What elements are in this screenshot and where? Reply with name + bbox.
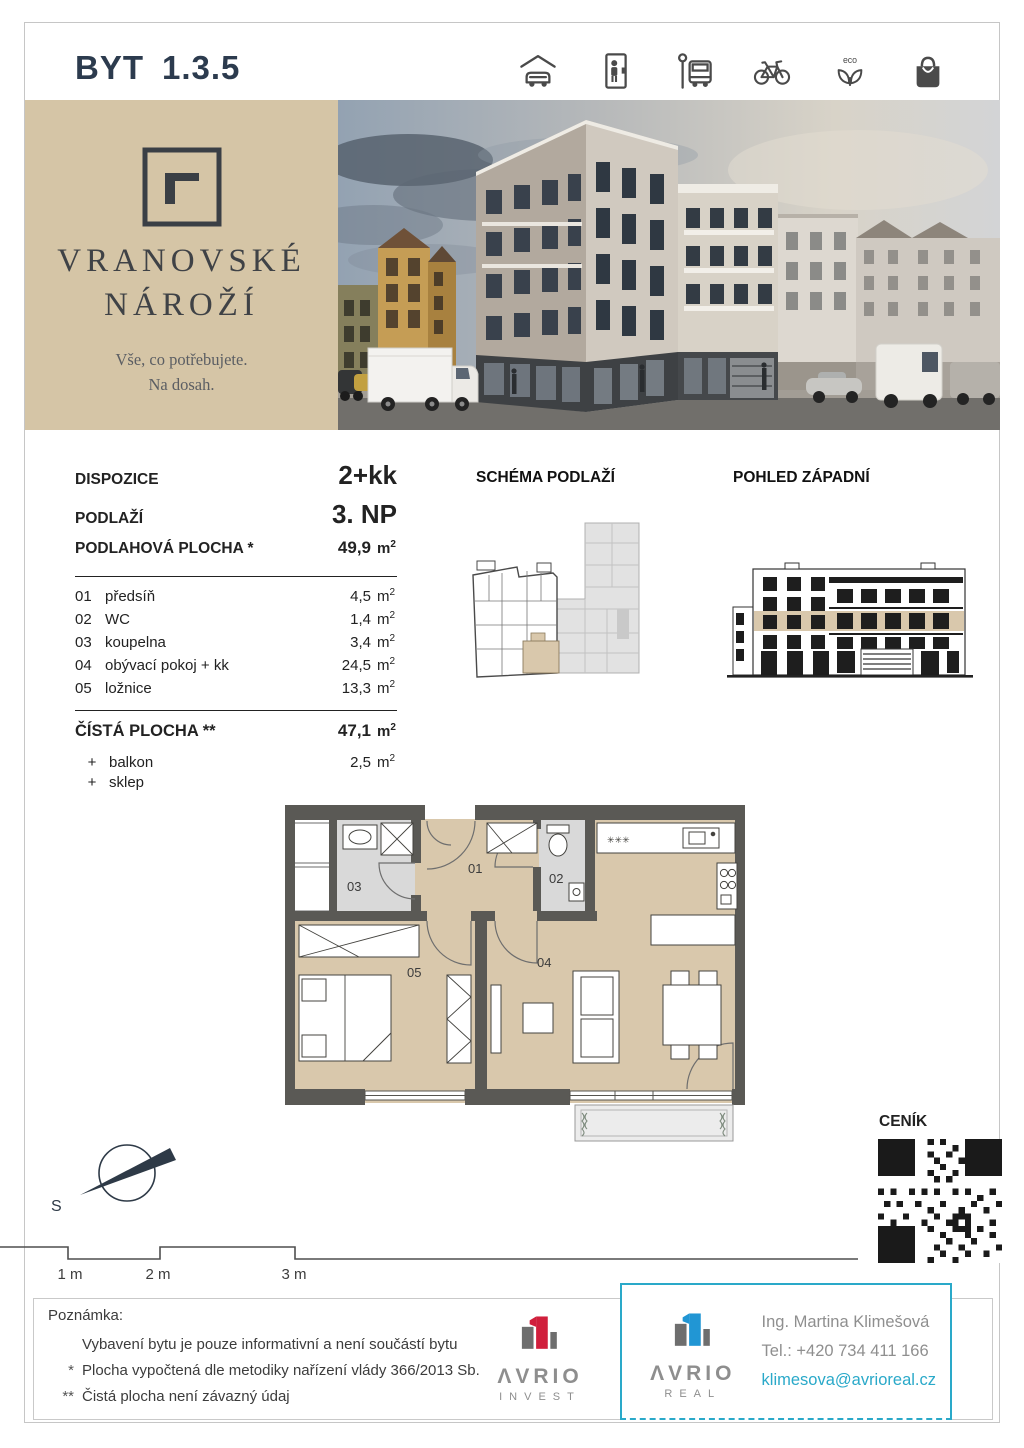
scale-label-3m: 3 m <box>281 1266 306 1283</box>
note-text: Plocha vypočtená dle metodiky nařízení v… <box>82 1362 480 1379</box>
note-text: Vybavení bytu je pouze informativní a ne… <box>82 1336 458 1353</box>
page-title: BYT1.3.5 <box>75 49 240 87</box>
agent-email-link[interactable]: klimesova@avrioreal.cz <box>762 1371 936 1390</box>
room-number: 02 <box>75 611 105 628</box>
extra-name: balkon <box>109 754 319 771</box>
building-render <box>338 100 1000 430</box>
spec-value: 47,1 <box>319 721 371 741</box>
brand-panel: VRANOVSKÉ NÁROŽÍ Vše, co potřebujete. Na… <box>25 100 338 430</box>
contact-info: Ing. Martina Klimešová Tel.: +420 734 41… <box>762 1313 936 1390</box>
spec-label: PODLAŽÍ <box>75 510 332 528</box>
brand-name-line1: VRANOVSKÉ <box>25 240 338 284</box>
plan-label-02: 02 <box>549 871 563 886</box>
brand-tagline-line2: Na dosah. <box>25 373 338 398</box>
avrio-real-icon <box>671 1304 715 1354</box>
scale-label-1m: 1 m <box>57 1266 82 1283</box>
bicycle-icon <box>751 50 793 92</box>
spec-row-net-area: ČÍSTÁ PLOCHA ** 47,1 m2 <box>75 721 397 753</box>
unit-m2: m2 <box>371 722 397 740</box>
room-number: 01 <box>75 588 105 605</box>
note-text: Čistá plocha není závazný údaj <box>82 1388 290 1405</box>
avrio-real-logo: ΛVRIO REAL <box>636 1304 750 1400</box>
extra-name: sklep <box>109 774 319 791</box>
room-row-03: 03 koupelna 3,4 m2 <box>75 633 397 656</box>
avrio-invest-subtitle: INVEST <box>470 1391 610 1403</box>
plus-sign: + <box>75 774 109 791</box>
compass-south-label: S <box>51 1198 62 1215</box>
spec-value: 2+kk <box>338 460 397 491</box>
extra-row-sklep: + sklep <box>75 774 397 795</box>
west-elevation <box>725 555 975 687</box>
room-area: 1,4 <box>319 611 371 628</box>
price-qr-code <box>878 1139 1002 1263</box>
unit-m2: m2 <box>371 587 397 605</box>
room-row-05: 05 ložnice 13,3 m2 <box>75 679 397 702</box>
room-name: WC <box>105 611 319 628</box>
avrio-real-subtitle: REAL <box>636 1388 750 1400</box>
room-number: 04 <box>75 657 105 674</box>
room-area: 4,5 <box>319 588 371 605</box>
note-marker <box>48 1336 82 1353</box>
note-line-1: Vybavení bytu je pouze informativní a ne… <box>48 1336 480 1353</box>
spec-row-floor-area: PODLAHOVÁ PLOCHA * 49,9 m2 <box>75 538 397 568</box>
unit-m2: m2 <box>371 633 397 651</box>
amenities-bar: eco <box>517 50 949 92</box>
hero-section: VRANOVSKÉ NÁROŽÍ Vše, co potřebujete. Na… <box>25 100 1000 430</box>
room-row-01: 01 předsíň 4,5 m2 <box>75 587 397 610</box>
spec-label: PODLAHOVÁ PLOCHA * <box>75 540 319 558</box>
unit-m2: m2 <box>371 656 397 674</box>
notes-heading: Poznámka: <box>48 1307 480 1324</box>
avrio-invest-wordmark: ΛVRIO <box>470 1365 610 1389</box>
shopping-bag-icon <box>907 50 949 92</box>
brand-tagline: Vše, co potřebujete. Na dosah. <box>25 348 338 398</box>
room-area: 13,3 <box>319 680 371 697</box>
plan-label-03: 03 <box>347 879 361 894</box>
room-area: 24,5 <box>319 657 371 674</box>
title-unit-number: 1.3.5 <box>162 49 240 86</box>
note-line-2: * Plocha vypočtená dle metodiky nařízení… <box>48 1362 480 1379</box>
building-photo <box>338 100 1000 430</box>
elevation-title: POHLED ZÁPADNÍ <box>733 469 870 487</box>
spec-label: DISPOZICE <box>75 471 338 489</box>
agent-name: Ing. Martina Klimešová <box>762 1313 936 1332</box>
price-list-title: CENÍK <box>879 1113 927 1131</box>
room-number: 03 <box>75 634 105 651</box>
extra-row-balkon: + balkon 2,5 m2 <box>75 753 397 774</box>
avrio-real-wordmark: ΛVRIO <box>636 1362 750 1386</box>
room-area: 3,4 <box>319 634 371 651</box>
garage-icon <box>517 50 559 92</box>
eco-icon-label: eco <box>843 55 857 65</box>
bus-stop-icon <box>673 50 715 92</box>
extra-area: 2,5 <box>319 754 371 771</box>
brand-name-line2: NÁROŽÍ <box>25 284 338 328</box>
schema-title: SCHÉMA PODLAŽÍ <box>476 469 615 487</box>
room-name: předsíň <box>105 588 319 605</box>
spec-value: 3. NP <box>332 499 397 530</box>
plan-label-01: 01 <box>468 861 482 876</box>
floor-schema <box>457 513 667 693</box>
spec-label: ČÍSTÁ PLOCHA ** <box>75 722 319 741</box>
compass: S <box>35 1138 215 1248</box>
avrio-invest-logo: ΛVRIO INVEST <box>470 1307 610 1403</box>
note-line-3: ** Čistá plocha není závazný údaj <box>48 1388 480 1405</box>
elevator-icon <box>595 50 637 92</box>
eco-icon: eco <box>829 50 871 92</box>
spec-row-dispozice: DISPOZICE 2+kk <box>75 460 397 499</box>
avrio-invest-icon <box>518 1307 562 1357</box>
notes: Poznámka: Vybavení bytu je pouze informa… <box>48 1307 480 1414</box>
brand-tagline-line1: Vše, co potřebujete. <box>25 348 338 373</box>
floor-plan: ✳✳✳ <box>285 803 745 1147</box>
plan-label-05: 05 <box>407 965 421 980</box>
unit-m2: m2 <box>371 539 397 557</box>
scale-label-2m: 2 m <box>145 1266 170 1283</box>
contact-card: ΛVRIO REAL Ing. Martina Klimešová Tel.: … <box>620 1283 952 1420</box>
brand-logo-icon <box>141 146 223 228</box>
spec-row-podlazi: PODLAŽÍ 3. NP <box>75 499 397 538</box>
brand-name: VRANOVSKÉ NÁROŽÍ <box>25 240 338 328</box>
room-row-02: 02 WC 1,4 m2 <box>75 610 397 633</box>
room-name: koupelna <box>105 634 319 651</box>
room-row-04: 04 obývací pokoj + kk 24,5 m2 <box>75 656 397 679</box>
title-prefix: BYT <box>75 49 144 86</box>
agent-phone: Tel.: +420 734 411 166 <box>762 1342 936 1361</box>
spec-value: 49,9 <box>319 538 371 558</box>
room-name: obývací pokoj + kk <box>105 657 319 674</box>
unit-m2: m2 <box>371 679 397 697</box>
plus-sign: + <box>75 754 109 771</box>
kitchen-vent-mark: ✳✳✳ <box>607 835 630 845</box>
brochure-page: BYT1.3.5 <box>24 22 1000 1423</box>
room-number: 05 <box>75 680 105 697</box>
divider <box>75 576 397 577</box>
divider <box>75 710 397 711</box>
unit-m2: m2 <box>371 753 397 771</box>
room-name: ložnice <box>105 680 319 697</box>
note-marker: ** <box>48 1388 82 1405</box>
spec-table: DISPOZICE 2+kk PODLAŽÍ 3. NP PODLAHOVÁ P… <box>75 460 397 795</box>
note-marker: * <box>48 1362 82 1379</box>
plan-label-04: 04 <box>537 955 551 970</box>
unit-m2: m2 <box>371 610 397 628</box>
